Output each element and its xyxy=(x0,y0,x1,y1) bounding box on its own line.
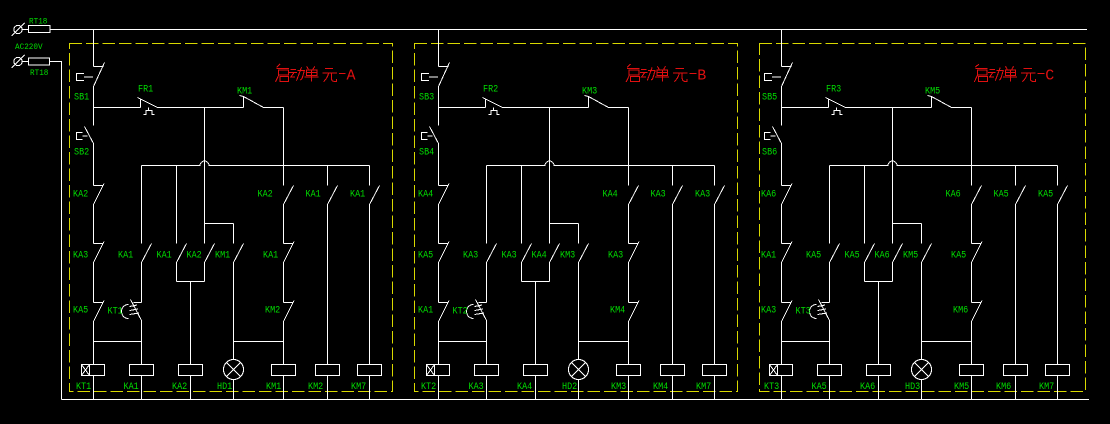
svg-text:KA6: KA6 xyxy=(761,189,776,201)
svg-text:HD2: HD2 xyxy=(562,381,577,393)
svg-text:KA2: KA2 xyxy=(187,250,202,262)
svg-text:KA4: KA4 xyxy=(517,381,532,393)
svg-text:KA3: KA3 xyxy=(608,250,623,262)
svg-text:KA5: KA5 xyxy=(951,250,966,262)
svg-text:SB1: SB1 xyxy=(74,92,89,104)
svg-text:SB4: SB4 xyxy=(419,147,434,159)
svg-text:KA1: KA1 xyxy=(118,250,133,262)
svg-text:KM5: KM5 xyxy=(903,250,918,262)
svg-text:KT2: KT2 xyxy=(421,381,436,393)
svg-text:KT3: KT3 xyxy=(764,381,779,393)
svg-text:KA3: KA3 xyxy=(651,189,666,201)
svg-text:KM2: KM2 xyxy=(265,305,280,317)
svg-text:KA6: KA6 xyxy=(875,250,890,262)
svg-text:KT2: KT2 xyxy=(453,306,468,318)
svg-text:KM3: KM3 xyxy=(560,250,575,262)
svg-text:FR1: FR1 xyxy=(138,84,153,96)
svg-text:KT1: KT1 xyxy=(76,381,91,393)
svg-text:KA1: KA1 xyxy=(157,250,172,262)
svg-text:KA1: KA1 xyxy=(761,250,776,262)
svg-text:HD3: HD3 xyxy=(905,381,920,393)
svg-text:KA6: KA6 xyxy=(946,189,961,201)
svg-text:KA3: KA3 xyxy=(502,250,517,262)
svg-text:KM1: KM1 xyxy=(215,250,230,262)
svg-text:KM7: KM7 xyxy=(351,381,366,393)
svg-text:KA1: KA1 xyxy=(306,189,321,201)
svg-text:KM2: KM2 xyxy=(308,381,323,393)
svg-text:KT1: KT1 xyxy=(108,306,123,318)
svg-text:KM1: KM1 xyxy=(237,86,252,98)
svg-text:KM5: KM5 xyxy=(925,86,940,98)
svg-text:SB2: SB2 xyxy=(74,147,89,159)
svg-text:KM7: KM7 xyxy=(696,381,711,393)
svg-text:KM6: KM6 xyxy=(953,305,968,317)
svg-text:C: C xyxy=(1045,68,1054,85)
svg-text:KA5: KA5 xyxy=(73,305,88,317)
svg-text:FR2: FR2 xyxy=(483,84,498,96)
svg-text:SB3: SB3 xyxy=(419,92,434,104)
svg-text:A: A xyxy=(347,68,356,85)
svg-text:KM4: KM4 xyxy=(610,305,625,317)
svg-text:KA5: KA5 xyxy=(806,250,821,262)
svg-text:KA2: KA2 xyxy=(73,189,88,201)
svg-text:KM5: KM5 xyxy=(954,381,969,393)
svg-text:AC220V: AC220V xyxy=(15,43,43,52)
svg-text:KM1: KM1 xyxy=(266,381,281,393)
svg-text:RT18: RT18 xyxy=(30,69,49,78)
svg-text:KA5: KA5 xyxy=(994,189,1009,201)
svg-text:KT3: KT3 xyxy=(796,306,811,318)
svg-text:FR3: FR3 xyxy=(826,84,841,96)
svg-text:KA5: KA5 xyxy=(1038,189,1053,201)
svg-text:KA3: KA3 xyxy=(761,305,776,317)
svg-text:SB5: SB5 xyxy=(762,92,777,104)
svg-text:KA1: KA1 xyxy=(418,305,433,317)
svg-text:KA3: KA3 xyxy=(469,381,484,393)
svg-text:KA4: KA4 xyxy=(418,189,433,201)
svg-text:HD1: HD1 xyxy=(217,381,232,393)
svg-text:KA1: KA1 xyxy=(350,189,365,201)
svg-text:KM3: KM3 xyxy=(582,86,597,98)
svg-text:KA2: KA2 xyxy=(172,381,187,393)
svg-text:KA6: KA6 xyxy=(860,381,875,393)
svg-text:KM7: KM7 xyxy=(1039,381,1054,393)
svg-text:KA3: KA3 xyxy=(73,250,88,262)
svg-text:SB6: SB6 xyxy=(762,147,777,159)
svg-text:B: B xyxy=(697,68,706,85)
svg-text:KM3: KM3 xyxy=(611,381,626,393)
svg-text:KA1: KA1 xyxy=(124,381,139,393)
svg-text:KM6: KM6 xyxy=(996,381,1011,393)
svg-text:KM4: KM4 xyxy=(653,381,668,393)
svg-text:KA4: KA4 xyxy=(603,189,618,201)
svg-text:RT18: RT18 xyxy=(29,18,48,27)
svg-text:KA2: KA2 xyxy=(258,189,273,201)
svg-text:KA3: KA3 xyxy=(463,250,478,262)
svg-text:KA5: KA5 xyxy=(418,250,433,262)
svg-text:KA1: KA1 xyxy=(263,250,278,262)
svg-text:KA5: KA5 xyxy=(812,381,827,393)
svg-text:KA5: KA5 xyxy=(845,250,860,262)
svg-text:KA3: KA3 xyxy=(695,189,710,201)
svg-text:KA4: KA4 xyxy=(532,250,547,262)
